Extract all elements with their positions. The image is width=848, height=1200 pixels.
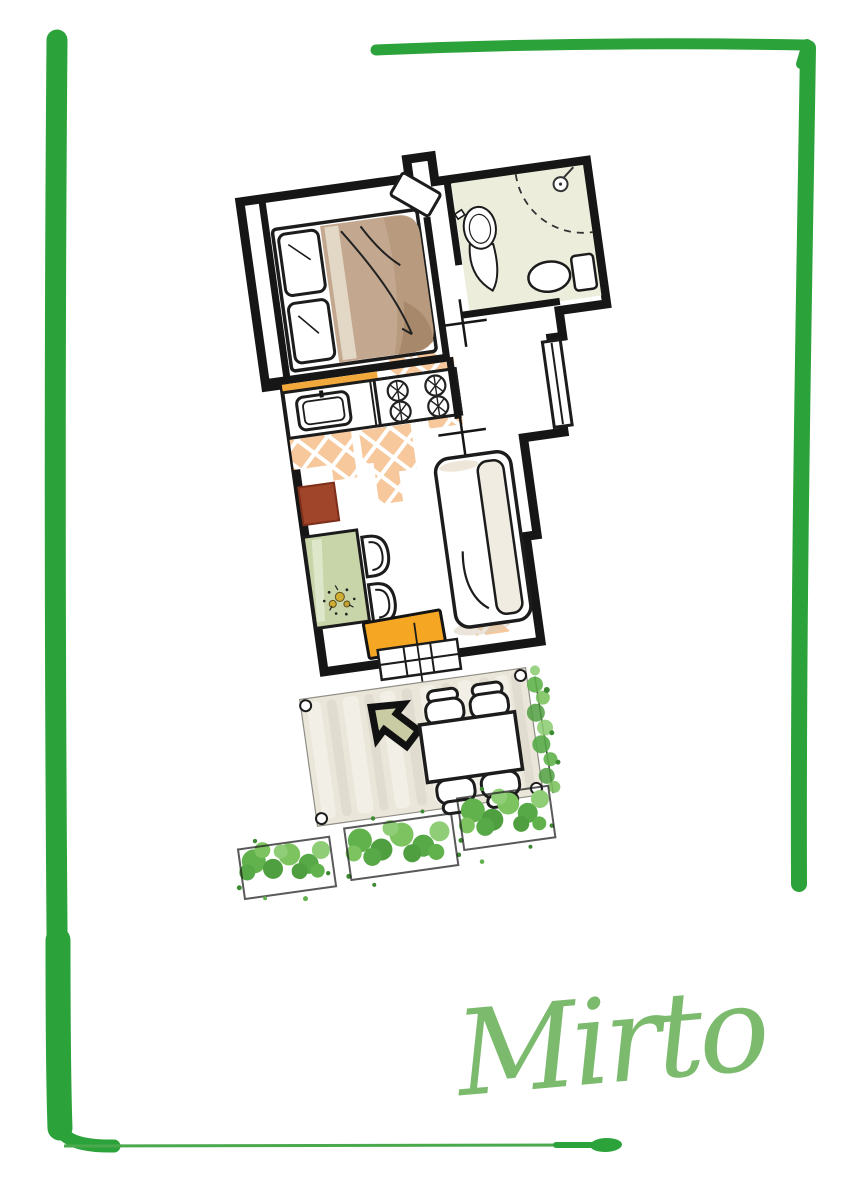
frame-right-stroke	[799, 48, 808, 884]
scene: Mirto	[0, 0, 848, 1200]
pillow	[288, 299, 336, 364]
dining-table	[303, 530, 369, 629]
signature-text: Mirto	[449, 959, 770, 1124]
deck-post	[299, 699, 311, 711]
frame-top-stroke	[376, 44, 804, 50]
bed	[272, 209, 436, 371]
deck-post	[514, 669, 526, 681]
deck-post	[315, 812, 327, 824]
planter-box	[230, 829, 336, 900]
pillow	[278, 229, 326, 296]
frame-left-stroke-foot	[58, 940, 60, 1128]
patio-table	[419, 712, 522, 783]
frame-bottom-blob	[590, 1137, 622, 1152]
page: Mirto	[0, 0, 848, 1200]
frame-bottom-line	[64, 1145, 592, 1146]
stool-red	[298, 483, 339, 526]
floor-plan	[140, 135, 683, 911]
stove	[374, 369, 462, 426]
